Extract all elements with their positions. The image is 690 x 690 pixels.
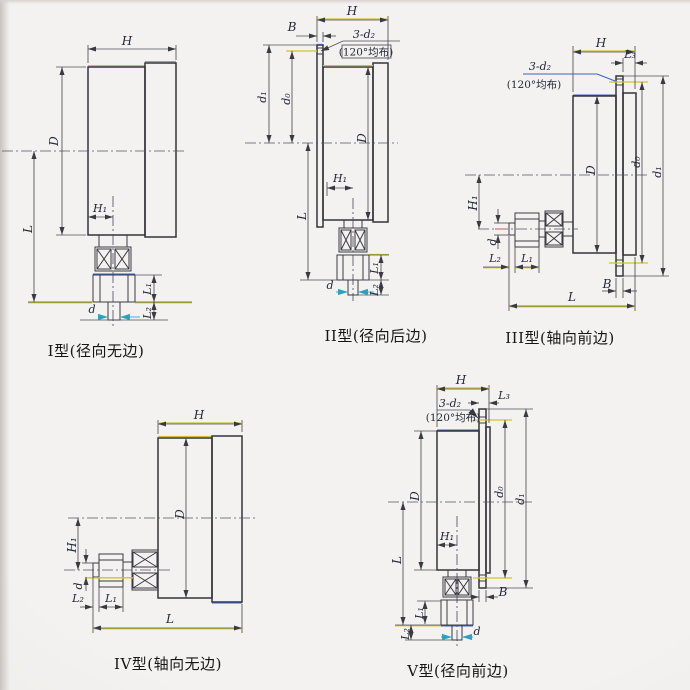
fig5-dim-label-d: d	[473, 625, 480, 638]
fig4-dimensions	[78, 420, 242, 633]
gauge-mounting-drawings: H D L H₁ L₁ L₂ d I型(径向无边)	[0, 0, 690, 690]
fig5-caption: V型(径向前边)	[406, 662, 509, 680]
fig3-dim-label-d: d	[486, 238, 499, 245]
fig4-dim-label-L2: L₂	[71, 592, 84, 605]
fig3-holes-label: 3-d₂	[529, 60, 551, 73]
fig5-dim-label-L: L	[390, 556, 404, 565]
fig1-dimensions	[28, 45, 192, 320]
figure-type-5: H L₃ 3-d₂ (120°均布) d₀ d₁ D L H₁ L₁ L₂ d …	[388, 373, 533, 680]
fig4-dim-label-H: H	[193, 408, 205, 422]
fig1-dim-label-L: L	[21, 225, 35, 234]
fig4-caption: IV型(轴向无边)	[114, 655, 222, 673]
fig5-dim-label-d0: d₀	[493, 486, 506, 498]
fig5-dim-label-L1: L₁	[413, 607, 426, 620]
fig5-dim-label-B: B	[498, 585, 508, 599]
fig1-dim-label-H: H	[121, 34, 133, 48]
fig5-dim-label-L2: L₂	[399, 628, 412, 641]
fig4-dim-label-H1: H₁	[65, 537, 79, 553]
fig3-dim-label-D: D	[584, 165, 598, 176]
fig2-dim-label-B: B	[287, 20, 297, 34]
fig1-dim-label-L1: L₁	[141, 283, 154, 296]
fig2-dim-label-L1: L₁	[368, 262, 381, 275]
fig2-dim-label-d: d	[326, 279, 333, 292]
fig4-dim-label-L1: L₁	[104, 592, 117, 605]
fig3-hole-pattern-note: (120°均布)	[507, 79, 561, 91]
fig1-dim-label-L2: L₂	[141, 307, 154, 320]
figure-type-2: H B 3-d₂ (120°均布) d₁ d₀ D L H₁ L₁ L₂ d I…	[245, 4, 428, 345]
figure-type-1: H D L H₁ L₁ L₂ d I型(径向无边)	[2, 34, 192, 360]
fig2-caption: II型(径向后边)	[324, 327, 427, 345]
fig5-dim-label-D: D	[408, 491, 422, 502]
fig5-holes-label: 3-d₂	[439, 397, 461, 410]
fig1-dim-label-d: d	[88, 303, 95, 316]
fig2-hole-pattern-note: (120°均布)	[339, 47, 393, 59]
fig3-dim-label-L1: L₁	[520, 252, 533, 265]
fig3-dim-label-H1: H₁	[466, 195, 480, 211]
fig2-dim-label-d1: d₁	[256, 91, 269, 102]
fig2-dim-label-L: L	[295, 212, 309, 221]
fig1-dim-label-D: D	[47, 136, 61, 147]
gauge-case-side-view	[573, 76, 648, 276]
fig4-dim-label-D: D	[173, 509, 187, 520]
fig2-dim-label-H: H	[346, 4, 358, 18]
figure-type-4: H D H₁ d L₂ L₁ L IV型(轴向无边)	[64, 408, 255, 673]
fig4-dim-label-d: d	[72, 582, 85, 589]
fig1-caption: I型(径向无边)	[48, 342, 145, 360]
fig5-dim-label-H: H	[455, 373, 467, 387]
fig3-dim-label-L3: L₃	[623, 48, 636, 61]
fig5-dim-label-H1: H₁	[439, 530, 454, 543]
fig3-dim-label-L: L	[567, 290, 576, 304]
pressure-connection-stem	[93, 235, 135, 320]
fig3-dim-label-H: H	[595, 36, 607, 50]
fig3-dim-label-B: B	[602, 277, 612, 291]
fig3-dim-label-d1: d₁	[651, 166, 664, 177]
fig2-dim-label-d0: d₀	[280, 93, 293, 105]
figure-type-3: H L₃ 3-d₂ (120°均布) d₀ d₁ D H₁ d L₂ L₁ B …	[465, 36, 669, 347]
fig5-dim-label-d1: d₁	[514, 493, 527, 504]
fig3-dim-label-L2: L₂	[488, 252, 501, 265]
fig5-dim-label-L3: L₃	[497, 389, 510, 402]
fig2-dim-label-H1: H₁	[332, 172, 347, 185]
gauge-case-side-view	[158, 436, 242, 603]
fig5-hole-pattern-note: (120°均布)	[426, 412, 480, 424]
gauge-case-side-view	[317, 44, 388, 227]
drawing-sheet: H D L H₁ L₁ L₂ d I型(径向无边)	[0, 0, 690, 690]
fig3-caption: III型(轴向前边)	[505, 329, 614, 347]
fig4-dim-label-L: L	[165, 612, 174, 626]
fig1-dim-label-H1: H₁	[92, 202, 107, 215]
fig2-dim-label-D: D	[355, 133, 369, 144]
fig2-dim-label-L2: L₂	[368, 284, 381, 297]
fig3-dim-label-d0: d₀	[630, 156, 643, 168]
fig2-holes-label: 3-d₂	[353, 28, 375, 41]
